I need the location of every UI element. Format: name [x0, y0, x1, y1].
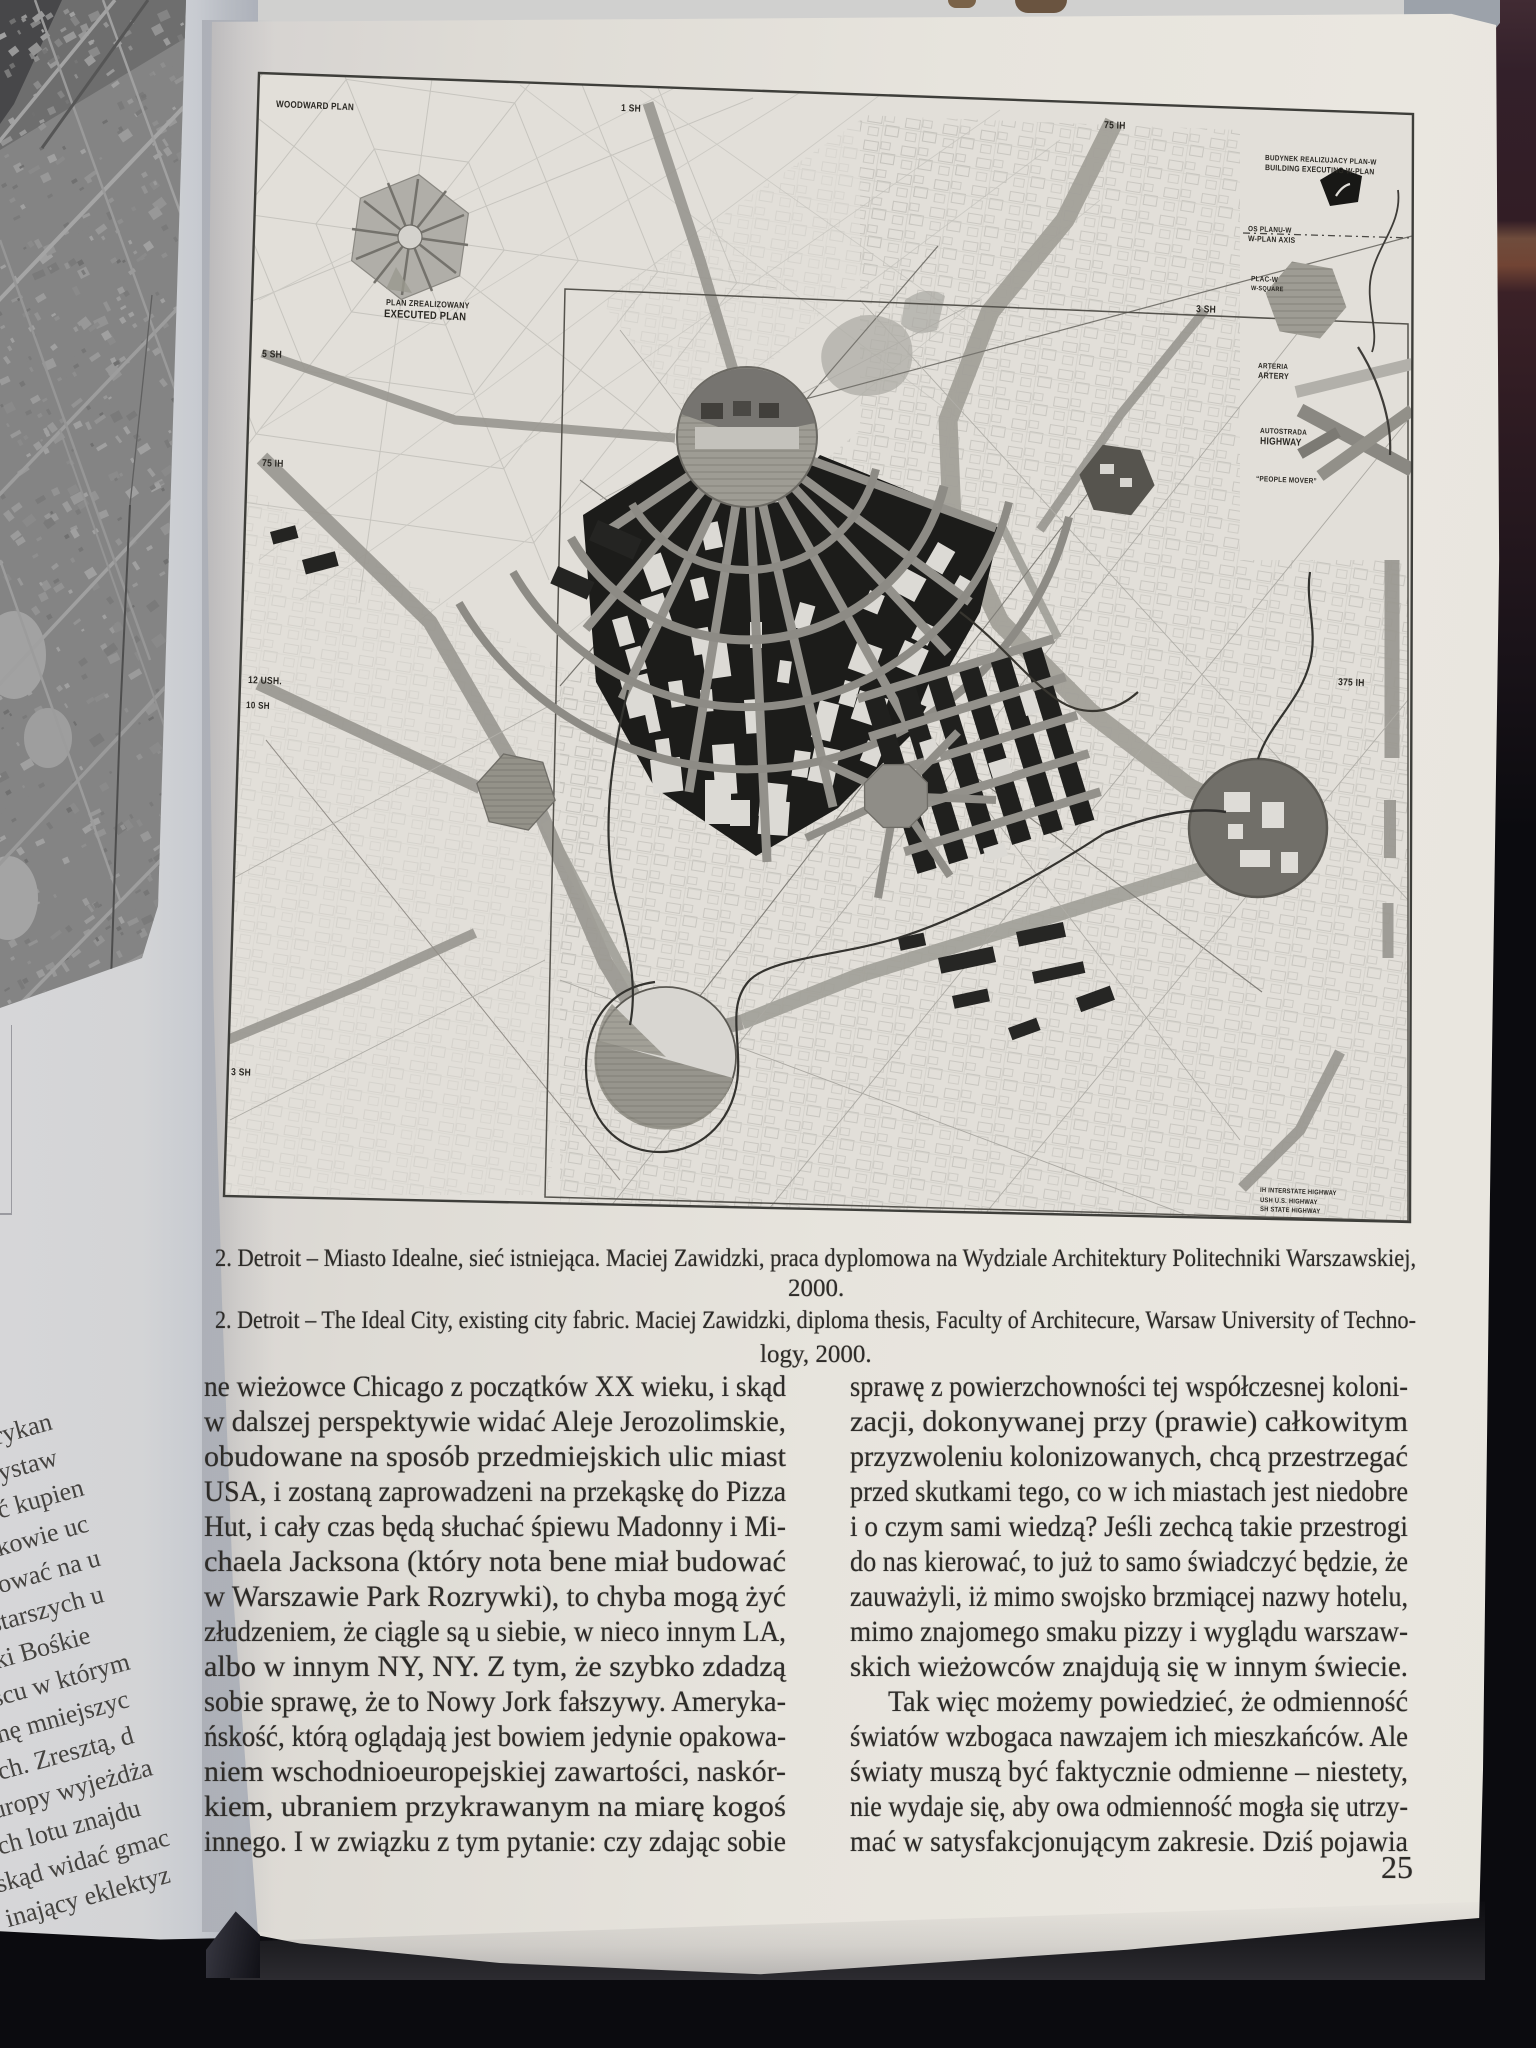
svg-text:3 SH: 3 SH	[231, 1066, 251, 1078]
svg-text:75 IH: 75 IH	[1104, 119, 1126, 131]
svg-text:75 IH: 75 IH	[262, 457, 284, 469]
svg-text:W-PLAN AXIS: W-PLAN AXIS	[1248, 233, 1296, 245]
svg-text:HIGHWAY: HIGHWAY	[1260, 435, 1302, 447]
svg-text:5 SH: 5 SH	[262, 348, 282, 360]
svg-text:375 IH: 375 IH	[1338, 676, 1365, 688]
svg-text:3 SH: 3 SH	[1196, 303, 1216, 315]
svg-text:W-SQUARE: W-SQUARE	[1251, 286, 1284, 294]
svg-text:12 USH.: 12 USH.	[248, 674, 282, 686]
svg-text:ARTERY: ARTERY	[1258, 370, 1290, 381]
svg-text:10 SH: 10 SH	[246, 699, 270, 711]
svg-text:1 SH: 1 SH	[621, 102, 641, 114]
svg-text:PLAC-W: PLAC-W	[1251, 276, 1278, 285]
